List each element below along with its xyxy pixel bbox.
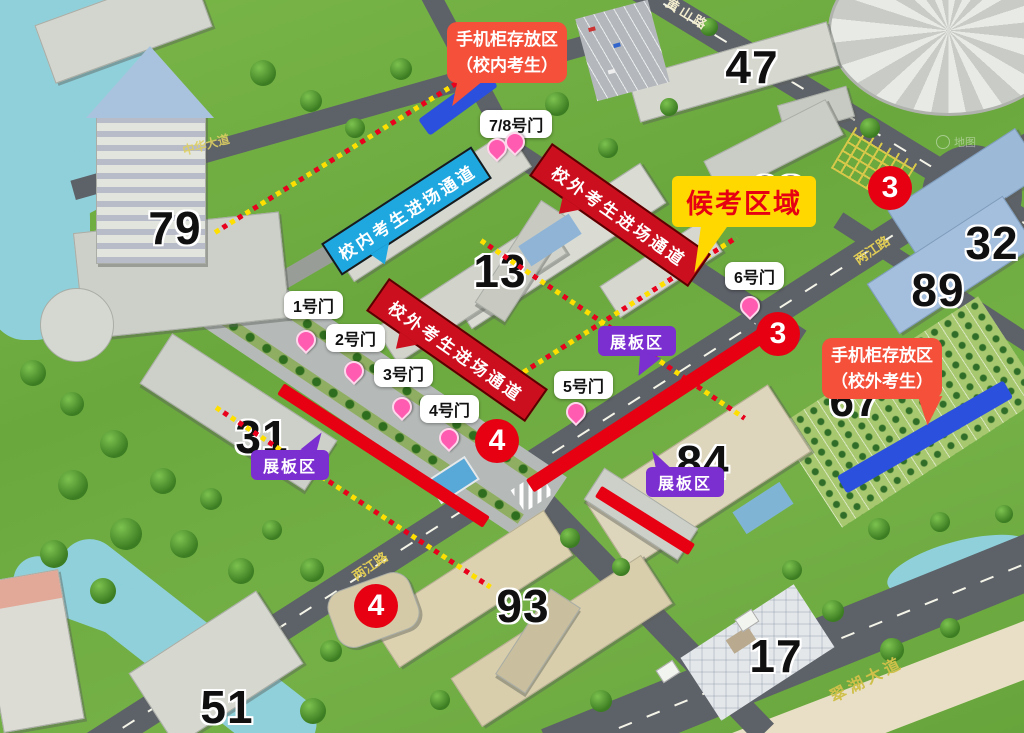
gate-label-4: 4号门 [420, 395, 479, 423]
watermark: 地图 [936, 134, 976, 150]
board-area-label: 展板区 [251, 450, 329, 480]
board-area-text: 展板区 [610, 335, 664, 352]
route-marker-4: 4 [475, 419, 519, 463]
car [613, 42, 621, 48]
gate-pin-2 [344, 361, 364, 381]
callout-tail [919, 396, 946, 426]
campus-map: 黄山路 中华大道 两江路 两江路 翠湖大道 79 13 47 62 32 89 … [0, 0, 1024, 733]
car [608, 69, 616, 75]
internal-examinee-channel-banner: 校内考生进场通道 [321, 146, 492, 275]
gate-pin-4 [439, 428, 459, 448]
callout-line1: 手机柜存放区 [456, 27, 558, 53]
gate-label-1: 1号门 [284, 291, 343, 319]
building-number-32: 32 [965, 220, 1018, 266]
watermark-text: 地图 [954, 134, 976, 150]
building-number-51: 51 [200, 684, 253, 730]
gate-pin-8 [505, 132, 525, 152]
route-marker-4: 4 [354, 584, 398, 628]
building-number-17: 17 [749, 633, 802, 679]
gate-pin-1 [296, 330, 316, 350]
gate-pin-5 [566, 402, 586, 422]
building-79-annex [40, 288, 114, 362]
gate-label-2: 2号门 [326, 324, 385, 352]
waiting-area-label: 候考区域 [686, 189, 802, 219]
callout-line1: 手机柜存放区 [831, 343, 933, 369]
gate-label-6: 6号门 [725, 262, 784, 290]
callout-line2: （校内考生） [456, 53, 558, 79]
stadium-dome [828, 0, 1024, 116]
building-number-79: 79 [148, 205, 201, 251]
route-marker-3: 3 [756, 312, 800, 356]
board-area-text: 展板区 [658, 476, 712, 493]
building-79-pyramid-roof [86, 46, 214, 118]
salmon-roof [0, 570, 62, 611]
board-area-label: 展板区 [598, 326, 676, 356]
board-area-text: 展板区 [263, 459, 317, 476]
route-marker-3: 3 [868, 166, 912, 210]
gate-pin-3 [392, 397, 412, 417]
gate-label-3: 3号门 [374, 359, 433, 387]
watermark-logo-icon [936, 135, 950, 149]
building-number-89: 89 [911, 267, 964, 313]
building-number-47: 47 [725, 44, 778, 90]
waiting-area-callout: 候考区域 [672, 176, 816, 227]
phone-storage-callout-internal: 手机柜存放区 （校内考生） [447, 22, 567, 83]
gate-pin-6 [740, 296, 760, 316]
car [588, 26, 596, 32]
callout-line2: （校外考生） [831, 369, 933, 395]
board-area-label: 展板区 [646, 467, 724, 497]
gate-label-5: 5号门 [554, 371, 613, 399]
phone-storage-callout-external: 手机柜存放区 （校外考生） [822, 338, 942, 399]
building-number-93: 93 [496, 583, 549, 629]
